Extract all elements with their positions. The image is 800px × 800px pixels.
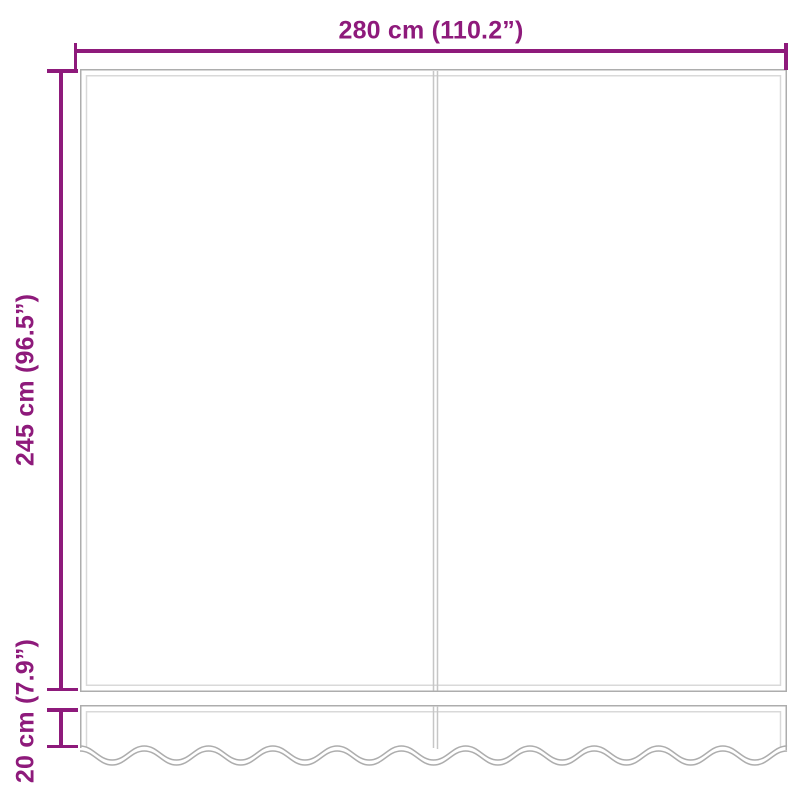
width-dimension-cap-left <box>74 43 78 71</box>
valance-dimension-cap-top <box>47 708 78 712</box>
height-dimension-label: 245 cm (96.5”) <box>12 294 41 466</box>
panel-outline <box>81 70 787 692</box>
valance-dimension-label: 20 cm (7.9”) <box>12 639 41 783</box>
valance-wave-outer <box>80 746 787 760</box>
height-dimension-cap-top <box>47 69 78 73</box>
fabric-linework <box>0 0 800 800</box>
valance-dimension-line <box>59 710 63 746</box>
width-dimension-label: 280 cm (110.2”) <box>338 17 523 46</box>
height-dimension-cap-bottom <box>47 688 78 692</box>
awning-dimension-diagram: 280 cm (110.2”) 245 cm (96.5”) 20 cm (7.… <box>0 0 800 800</box>
width-dimension-cap-right <box>784 43 788 71</box>
valance-wave-inner <box>80 751 787 765</box>
panel-seam <box>87 76 781 686</box>
width-dimension-line <box>75 49 786 53</box>
valance-dimension-cap-bottom <box>47 745 78 749</box>
height-dimension-line <box>59 70 63 689</box>
